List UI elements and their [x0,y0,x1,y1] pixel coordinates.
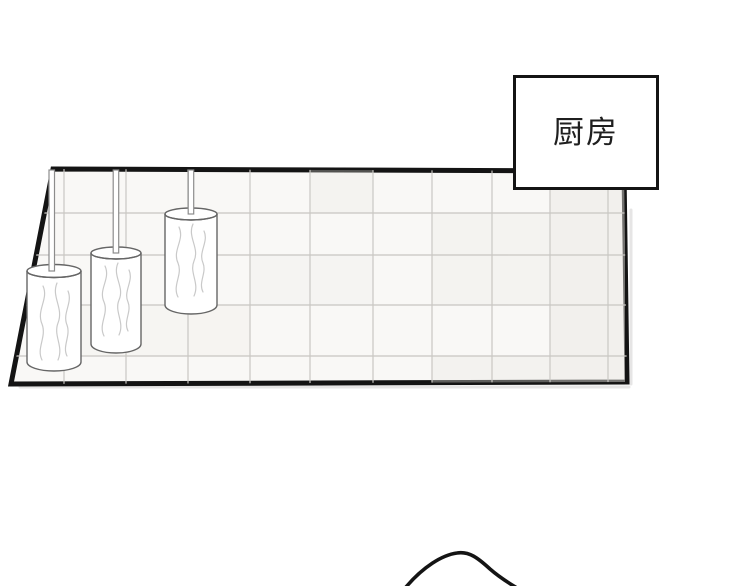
comic-panel-page: 厨房 [0,0,750,586]
hanging-rod-right [188,170,194,214]
hanging-rod-left [49,170,55,271]
location-label: 厨房 [553,117,619,148]
location-label-box: 厨房 [513,75,659,190]
head-outline [406,553,517,586]
hanging-rod-middle [113,170,119,253]
